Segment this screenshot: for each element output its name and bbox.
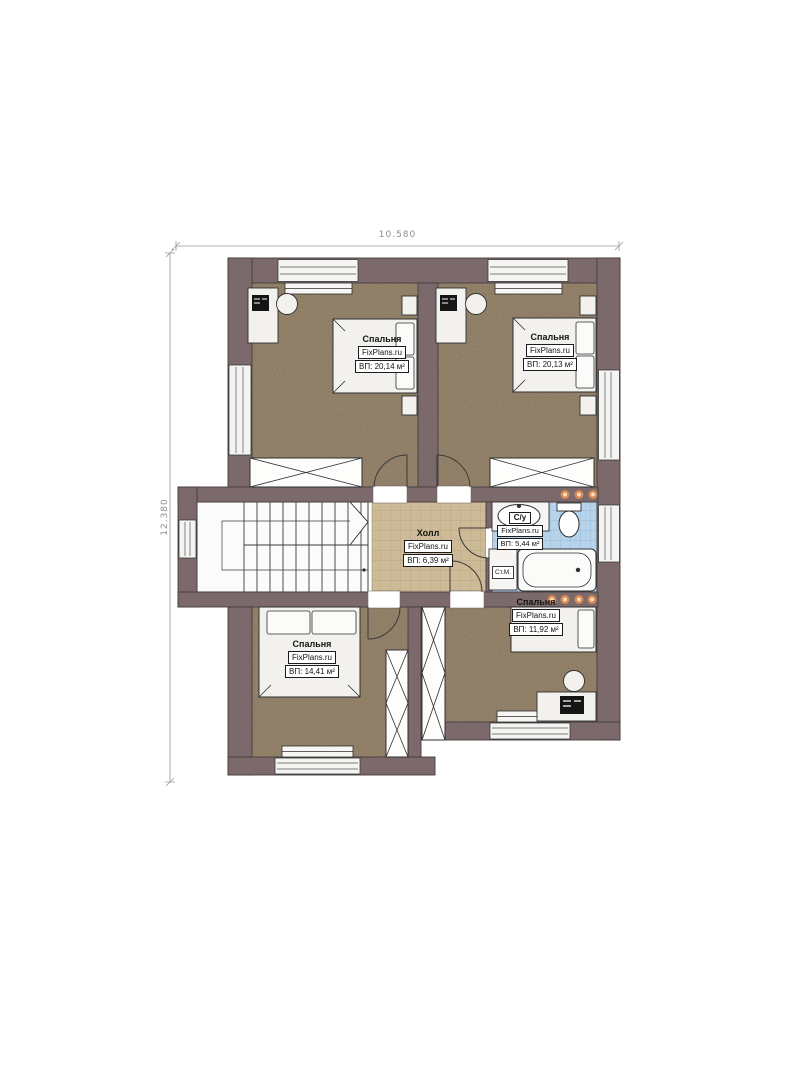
spotlight-row-top	[561, 490, 598, 499]
nightstand	[580, 396, 596, 415]
bathtub	[518, 549, 596, 591]
pillow	[576, 356, 594, 388]
wardrobe	[250, 458, 362, 487]
faucet	[517, 504, 521, 508]
pillow	[578, 610, 594, 648]
window-bottom-left	[275, 758, 360, 774]
pillow	[576, 322, 594, 354]
window-top-right	[488, 260, 568, 282]
nightstand	[402, 396, 417, 415]
tv-icon	[560, 696, 584, 714]
nightstand	[580, 296, 596, 315]
floor-plan-page: 10.580 12.380 Спальня FixPlans.ru ВП: 20…	[0, 0, 792, 1080]
window-top-left	[278, 260, 358, 282]
floor-plan-drawing	[0, 0, 792, 1080]
hall-floor	[372, 502, 486, 592]
wardrobe	[490, 458, 594, 487]
wall-right	[597, 258, 620, 740]
window-bottom-right	[490, 723, 570, 739]
chair	[466, 294, 487, 315]
wardrobe	[422, 607, 445, 740]
window-left-bedroom	[229, 365, 251, 455]
chair	[277, 294, 298, 315]
pillow	[396, 323, 414, 355]
wall-bedroom-divider-bottom	[408, 607, 421, 757]
pillow	[396, 357, 414, 389]
window-right-bedroom	[599, 370, 620, 460]
nightstand	[402, 296, 417, 315]
washing-machine	[489, 549, 517, 590]
window-bathroom	[599, 505, 620, 562]
pillow	[312, 611, 356, 634]
stairwell-floor	[197, 502, 368, 592]
wall-left-lower	[228, 607, 252, 775]
chair	[564, 671, 585, 692]
pillow	[267, 611, 310, 634]
wardrobe	[386, 650, 408, 757]
window-stair	[179, 520, 196, 558]
wall-bedroom-divider-top	[418, 283, 438, 487]
toilet	[557, 503, 581, 537]
